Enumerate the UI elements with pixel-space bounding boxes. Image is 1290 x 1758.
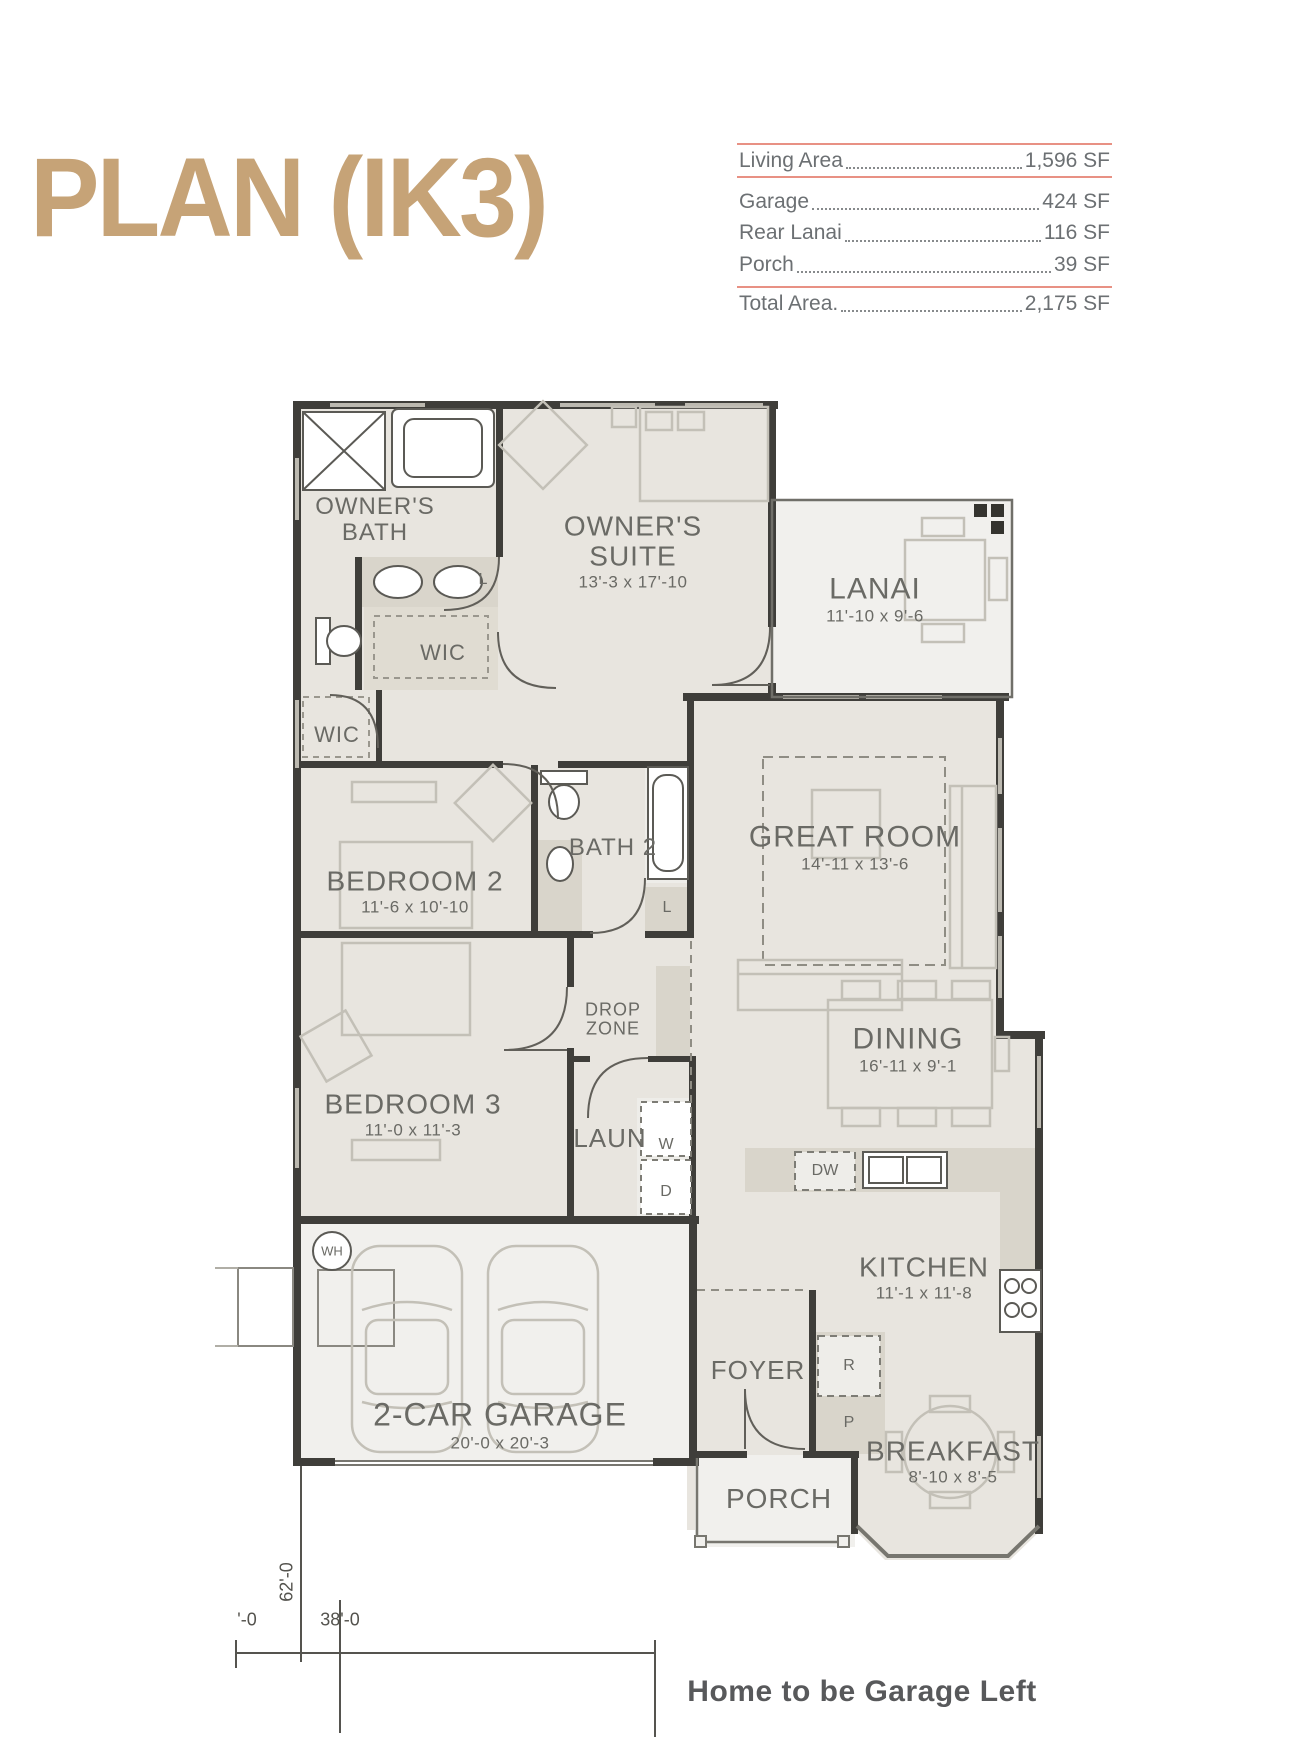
row-label: Porch — [739, 252, 794, 277]
table-row-porch: Porch 39 SF — [737, 249, 1112, 280]
row-label: Garage — [739, 189, 809, 214]
partial-dimension: '-0 — [237, 1610, 256, 1631]
linen-label-2: L — [663, 899, 672, 917]
page-title: PLAN (IK3) — [30, 142, 546, 254]
row-value: 39 SF — [1054, 252, 1110, 277]
water-heater-label: WH — [321, 1244, 343, 1259]
row-value: 116 SF — [1044, 220, 1110, 245]
dotted-leader — [797, 271, 1051, 273]
room-label-garage: 2-CAR GARAGE 20'-0 x 20'-3 — [330, 1398, 670, 1453]
room-label-kitchen: KITCHEN 11'-1 x 11'-8 — [814, 1253, 1034, 1304]
room-label-owners-suite: OWNER'S SUITE 13'-3 x 17'-10 — [528, 512, 738, 593]
room-label-lanai: LANAI 11'-10 x 9'-6 — [775, 574, 975, 627]
room-label-bath2: BATH 2 — [568, 835, 658, 861]
room-label-foyer: FOYER — [688, 1356, 828, 1384]
table-row-living-area: Living Area 1,596 SF — [737, 145, 1112, 176]
dotted-leader — [841, 310, 1022, 312]
room-label-porch: PORCH — [704, 1484, 854, 1514]
pantry-label: P — [844, 1414, 855, 1432]
room-label-drop-zone: DROP ZONE — [568, 1001, 658, 1040]
dishwasher-label: DW — [812, 1162, 839, 1180]
depth-dimension: 62'-0 — [277, 1562, 298, 1601]
floor-plan: OWNER'S BATH OWNER'S SUITE 13'-3 x 17'-1… — [215, 360, 1045, 1740]
dotted-leader — [846, 167, 1022, 169]
washer-label: W — [658, 1136, 673, 1154]
dotted-leader — [812, 208, 1039, 210]
room-label-wic-lower: WIC — [297, 723, 377, 747]
room-label-wic-upper: WIC — [403, 641, 483, 665]
dimension-lines — [236, 1466, 655, 1737]
width-dimension: 38'-0 — [320, 1610, 359, 1631]
room-label-dining: DINING 16'-11 x 9'-1 — [798, 1024, 1018, 1077]
room-label-breakfast: BREAKFAST 8'-10 x 8'-5 — [823, 1437, 1083, 1488]
row-value: 2,175 SF — [1025, 291, 1110, 316]
footer-note: Home to be Garage Left — [687, 1675, 1036, 1709]
linen-label-1: L — [479, 571, 488, 589]
room-label-great-room: GREAT ROOM 14'-11 x 13'-6 — [705, 822, 1005, 875]
room-label-bedroom2: BEDROOM 2 11'-6 x 10'-10 — [275, 867, 555, 918]
row-value: 424 SF — [1042, 189, 1110, 214]
area-summary-table: Living Area 1,596 SF Garage 424 SF Rear … — [737, 143, 1112, 319]
room-label-bedroom3: BEDROOM 3 11'-0 x 11'-3 — [273, 1090, 553, 1141]
dryer-label: D — [660, 1183, 672, 1201]
table-row-rear-lanai: Rear Lanai 116 SF — [737, 217, 1112, 248]
row-value: 1,596 SF — [1025, 148, 1110, 173]
row-label: Rear Lanai — [739, 220, 842, 245]
dotted-leader — [845, 240, 1041, 242]
room-label-owners-bath: OWNER'S BATH — [290, 494, 460, 546]
room-label-laundry: LAUN — [555, 1124, 665, 1152]
table-row-garage: Garage 424 SF — [737, 186, 1112, 217]
row-label: Living Area — [739, 148, 843, 173]
refrigerator-label: R — [843, 1357, 855, 1375]
table-row-total-area: Total Area. 2,175 SF — [737, 288, 1112, 319]
row-label: Total Area. — [739, 291, 838, 316]
